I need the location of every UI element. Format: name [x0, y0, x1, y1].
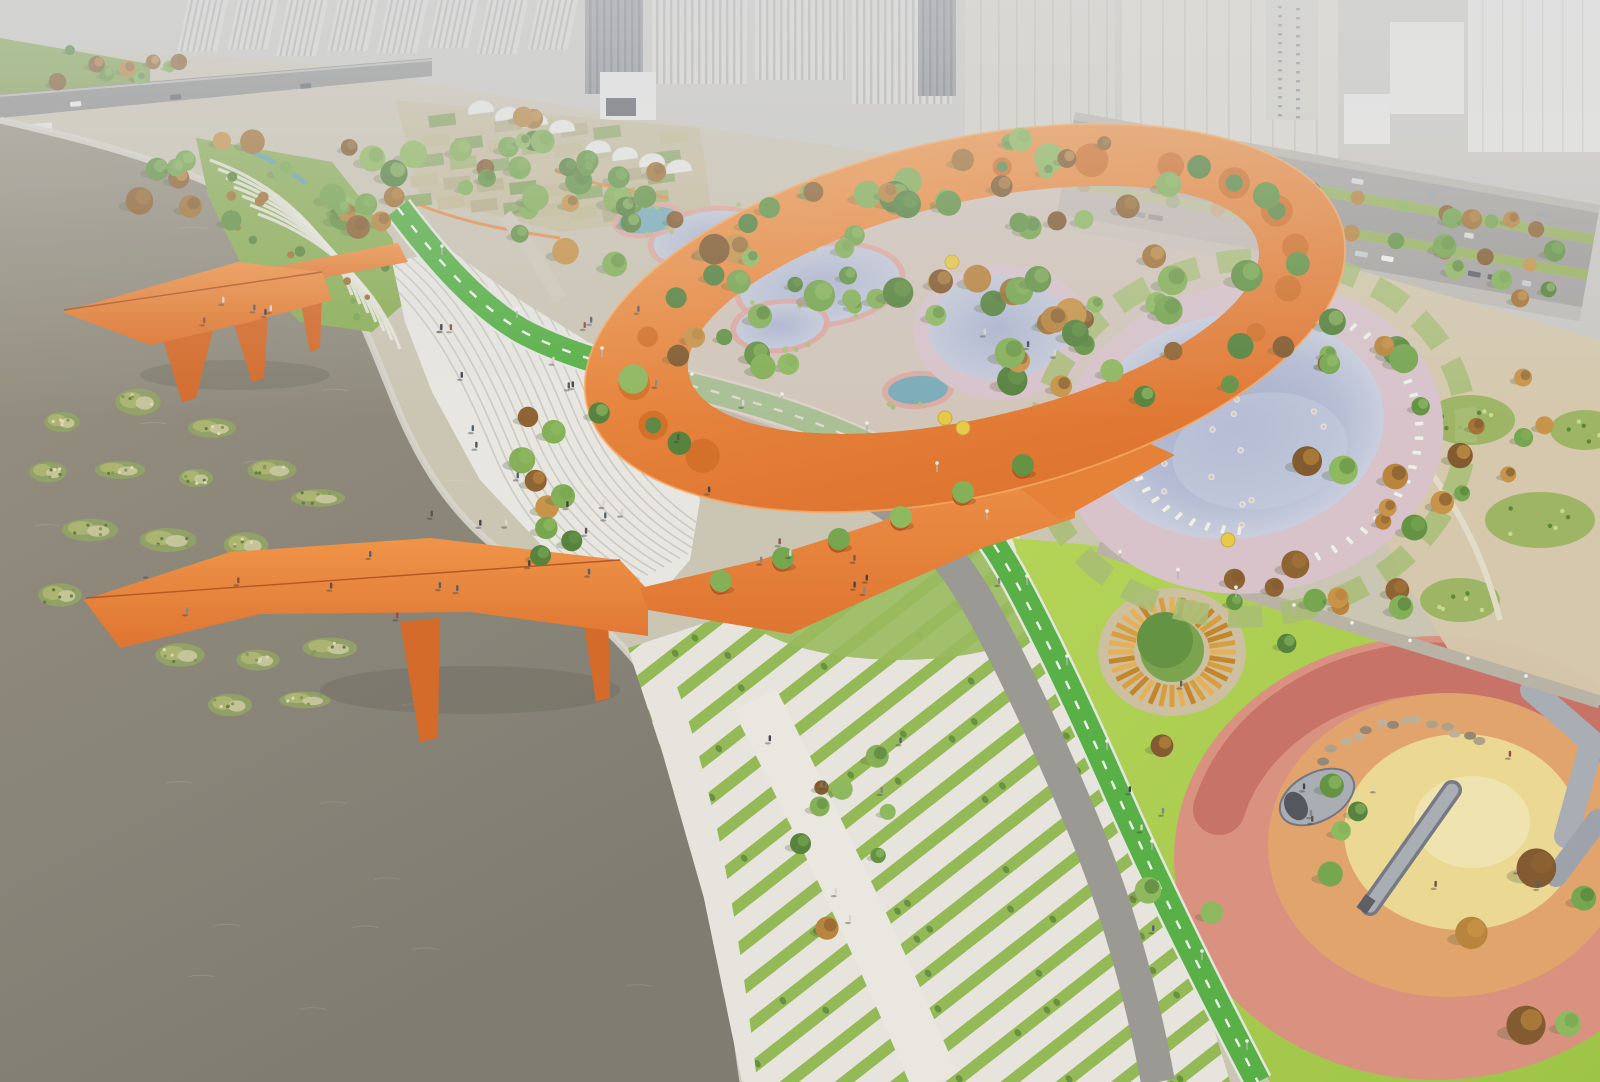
aerial-park-rendering: [0, 0, 1600, 1082]
scene-svg: [0, 0, 1600, 1082]
atmosphere-tint: [0, 0, 1600, 1082]
